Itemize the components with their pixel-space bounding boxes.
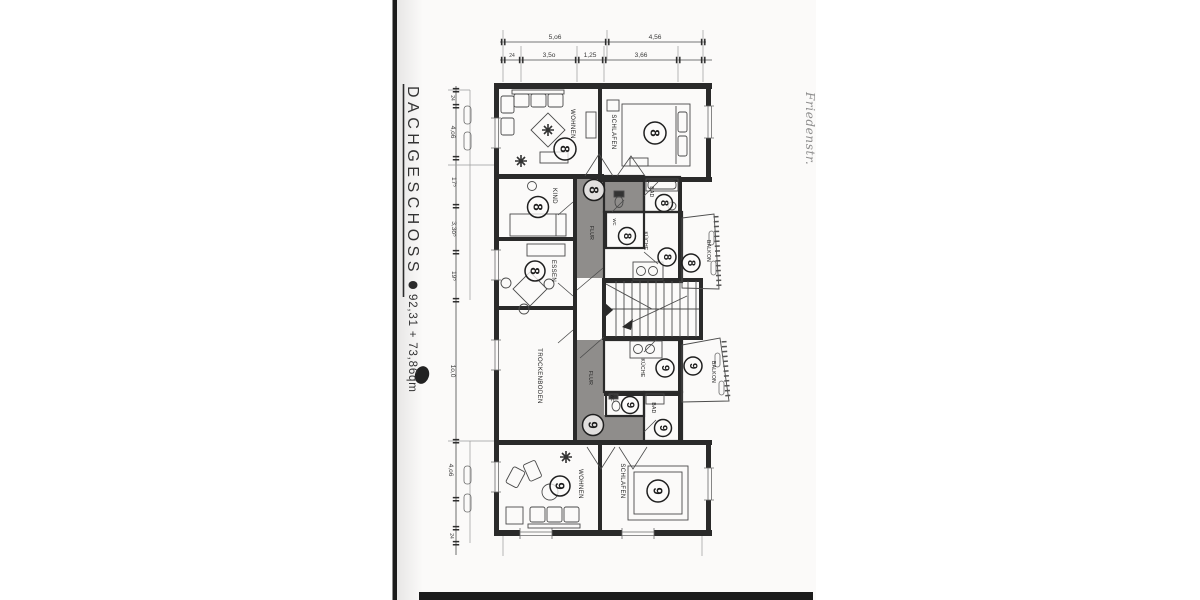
room-label-bad-9: BAD [650, 402, 656, 413]
bottom-scan-bar [419, 592, 813, 600]
dim-top-2b: 3,5o [543, 52, 556, 59]
room-label-schlafen-8: SCHLAFEN [610, 114, 616, 149]
dim-left-8: 24 [448, 533, 454, 539]
dim-left-5: 19⁵ [450, 271, 457, 281]
dim-left-1: 24 [449, 95, 455, 101]
unit-number-balkon-9: 9 [687, 363, 699, 369]
room-label-flur-9: FLUR [587, 371, 593, 385]
room-label-wohnen-8: WOHNEN [569, 109, 575, 139]
dim-top-1b: 4,56 [649, 34, 662, 41]
unit-number-kueche-9: 9 [659, 365, 671, 371]
room-label-kueche-8: KÜCHE [642, 231, 649, 250]
room-label-wohnen-9: WOHNEN [577, 469, 583, 499]
dim-top-1a: 5,o6 [549, 34, 562, 41]
title-bullet-dot [409, 281, 418, 289]
unit-number-balkon-8: 8 [685, 260, 697, 266]
unit-number-wc-9: 9 [624, 402, 636, 408]
unit-number-essen-8: 8 [528, 267, 543, 274]
title-block: DACHGESCHOSS 92,31 + 73,86qm [404, 84, 422, 393]
scanned-floor-plan-page: DACHGESCHOSS 92,31 + 73,86qm Friedenstr.… [0, 0, 1200, 600]
unit-number-flur-8: 8 [587, 186, 602, 193]
unit-number-wc-8: 8 [621, 233, 633, 239]
room-label-wc-8: WC [612, 219, 617, 226]
dim-left-6: 1o,0 [449, 365, 456, 378]
unit-number-schlafen-8: 8 [648, 129, 663, 136]
floor-plan-svg: DACHGESCHOSS 92,31 + 73,86qm Friedenstr.… [0, 0, 1200, 600]
area-label: 92,31 + 73,86qm [406, 294, 418, 393]
room-label-bad-8: BAD [648, 186, 654, 197]
dim-left-4: 3,3o⁵ [450, 221, 457, 237]
dim-left-3: 17⁵ [450, 177, 457, 187]
room-label-balkon-9: BALKON [710, 361, 716, 383]
unit-number-schlafen-9: 9 [651, 487, 666, 494]
room-label-essen-8: ESSEN [550, 260, 556, 282]
room-label-kueche-9: KÜCHE [639, 358, 646, 377]
unit-number-bad-8: 8 [658, 200, 670, 206]
binding-edge-bar [393, 0, 398, 600]
unit-number-bad-9: 9 [657, 425, 669, 431]
unit-number-wohnen-8: 8 [558, 145, 573, 152]
handwritten-street-name: Friedenstr. [803, 91, 817, 165]
dim-top-2a: 24 [509, 53, 515, 59]
unit-number-kueche-8: 8 [661, 254, 673, 260]
unit-number-kind-8: 8 [531, 203, 546, 210]
page-title: DACHGESCHOSS [404, 86, 421, 276]
room-label-flur-8: FLUR [588, 226, 594, 240]
unit-number-flur-9: 9 [586, 421, 601, 428]
dim-top-2d: 3,66 [635, 52, 648, 59]
room-label-schlafen-9: SCHLAFEN [619, 463, 625, 498]
room-label-kind-8: KIND [551, 188, 557, 204]
dim-left-2: 4,o6 [449, 126, 456, 139]
room-label-wc-9: WC [610, 395, 615, 402]
room-label-trockenboden: TROCKENBODEN [536, 348, 542, 403]
dim-top-2c: 1,25 [584, 52, 597, 59]
unit-number-wohnen-9: 9 [553, 482, 568, 489]
room-label-balkon-8: BALKON [705, 240, 711, 262]
dim-left-7: 4,o6 [447, 464, 454, 477]
